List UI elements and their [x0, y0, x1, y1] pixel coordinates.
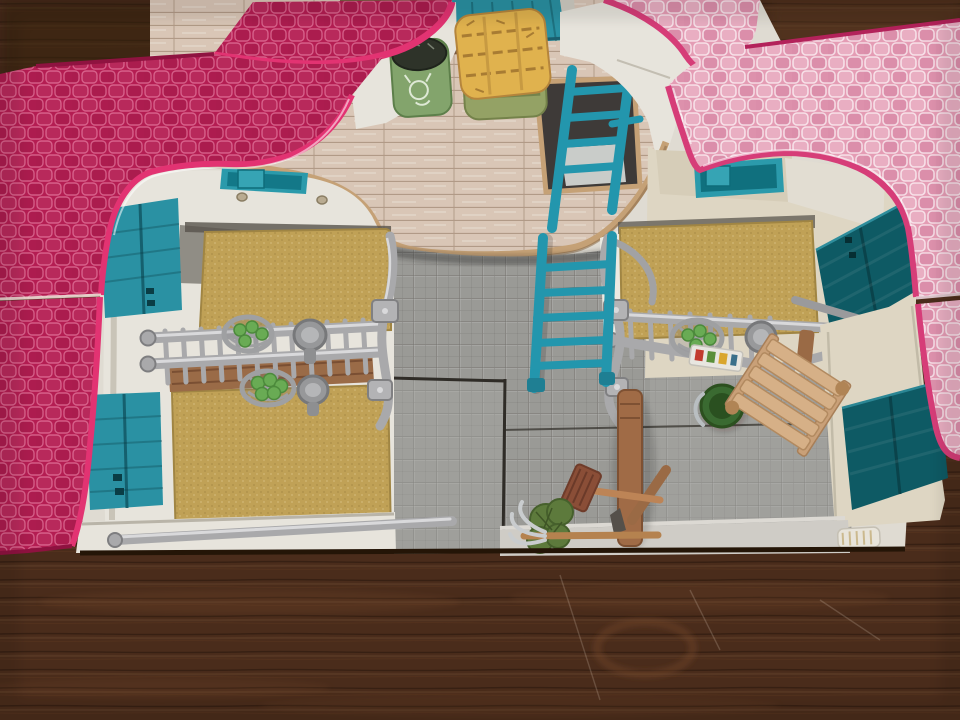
stall-door-lower-left — [86, 392, 163, 510]
grooming-brush — [837, 527, 880, 549]
screw-hole — [237, 193, 247, 201]
ladder-foot — [527, 378, 545, 392]
hay-rack-1 — [224, 317, 272, 351]
hay-rack-2 — [242, 371, 294, 405]
straw-bale-yellow — [454, 7, 552, 100]
ladder-foot — [599, 372, 615, 385]
screw-hole — [317, 196, 327, 204]
rail-cap — [141, 357, 156, 372]
stable-playset-photo — [0, 0, 960, 720]
photo-toy-stable — [0, 0, 960, 720]
rail-cap — [141, 331, 156, 346]
